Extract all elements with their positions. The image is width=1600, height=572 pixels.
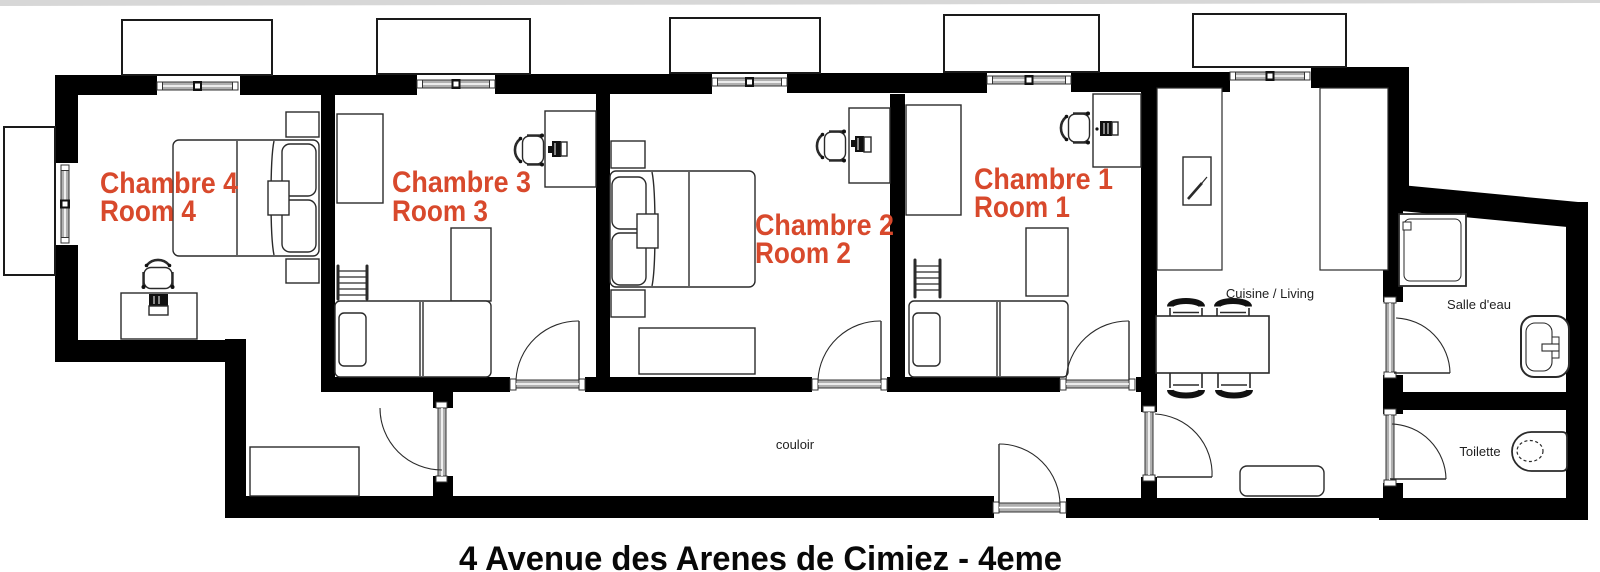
svg-text:Salle d'eau: Salle d'eau [1447, 297, 1511, 312]
svg-text:Room 1: Room 1 [974, 191, 1070, 224]
svg-text:4 Avenue des Arenes de Cimiez: 4 Avenue des Arenes de Cimiez - 4eme [459, 540, 1062, 572]
svg-text:Room 3: Room 3 [392, 195, 488, 228]
svg-text:Toilette: Toilette [1459, 444, 1500, 459]
svg-text:Room 2: Room 2 [755, 237, 851, 270]
svg-text:Cuisine / Living: Cuisine / Living [1226, 286, 1314, 301]
svg-text:couloir: couloir [776, 437, 815, 452]
svg-text:Room 4: Room 4 [100, 195, 196, 228]
